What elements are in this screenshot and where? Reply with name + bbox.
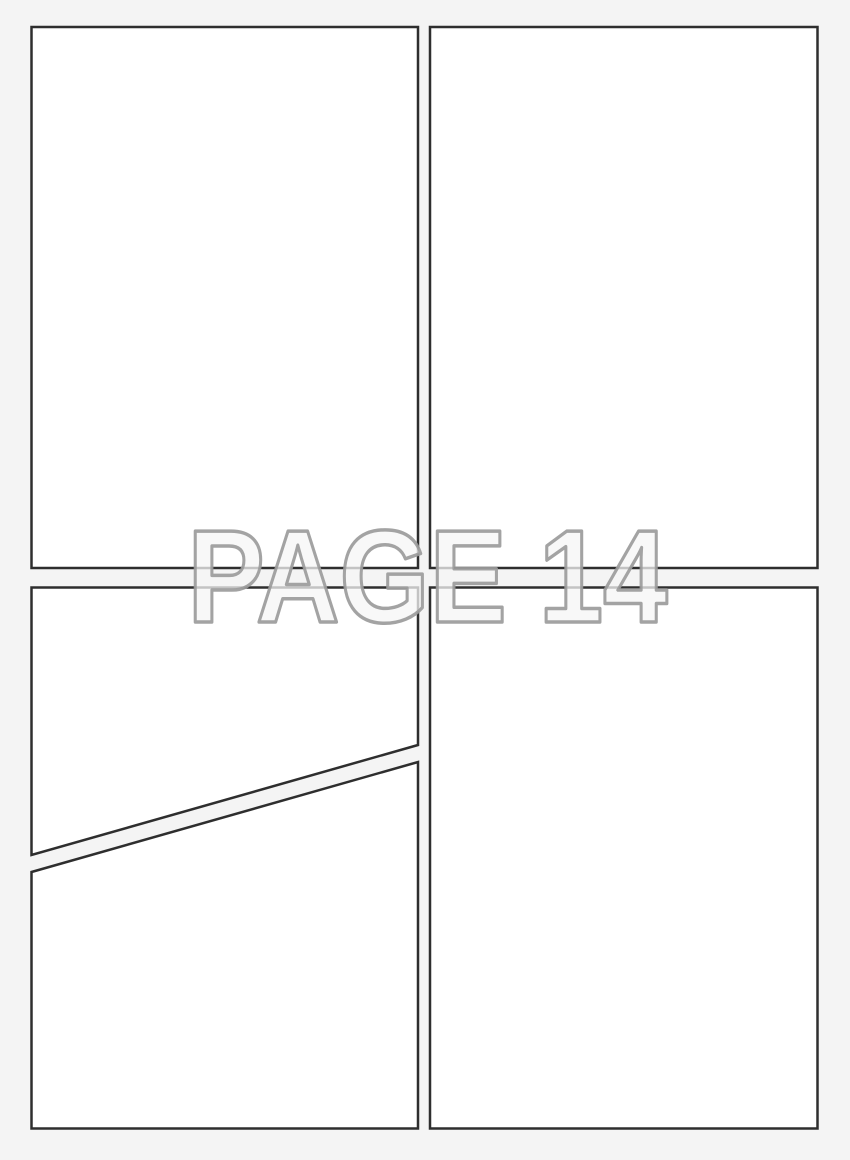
panel-top-left (32, 27, 419, 568)
comic-page-canvas: PAGE 14 (0, 0, 850, 1160)
comic-page-template: PAGE 14 (0, 0, 850, 1160)
page-number-watermark: PAGE 14 (188, 503, 668, 650)
panel-top-right (430, 27, 818, 568)
panel-bottom-right (430, 588, 818, 1129)
